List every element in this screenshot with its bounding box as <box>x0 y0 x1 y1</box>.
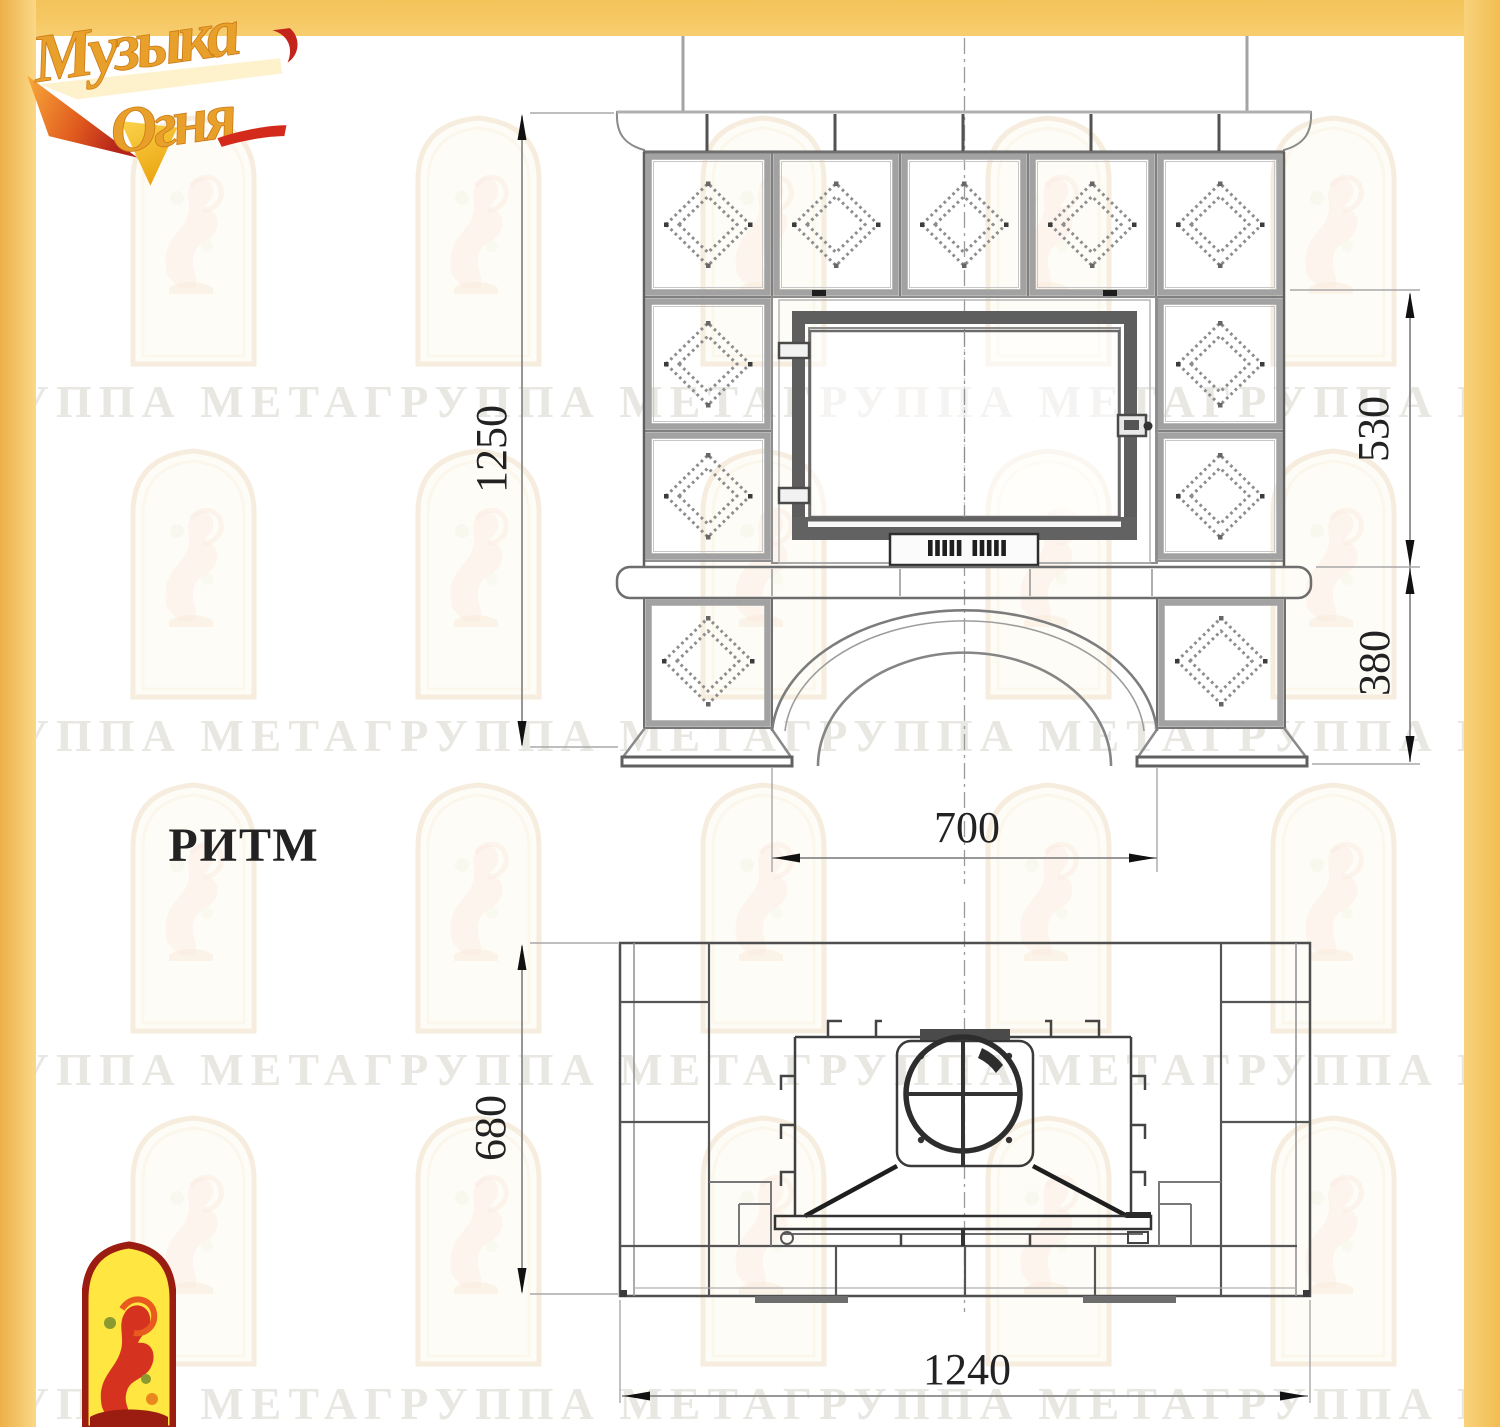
svg-text:1240: 1240 <box>923 1345 1011 1394</box>
svg-text:РИТМ: РИТМ <box>168 819 319 872</box>
svg-text:700: 700 <box>934 803 1000 852</box>
svg-text:1250: 1250 <box>467 405 516 493</box>
svg-text:530: 530 <box>1349 396 1398 462</box>
svg-text:680: 680 <box>466 1095 515 1161</box>
svg-text:380: 380 <box>1350 630 1399 696</box>
